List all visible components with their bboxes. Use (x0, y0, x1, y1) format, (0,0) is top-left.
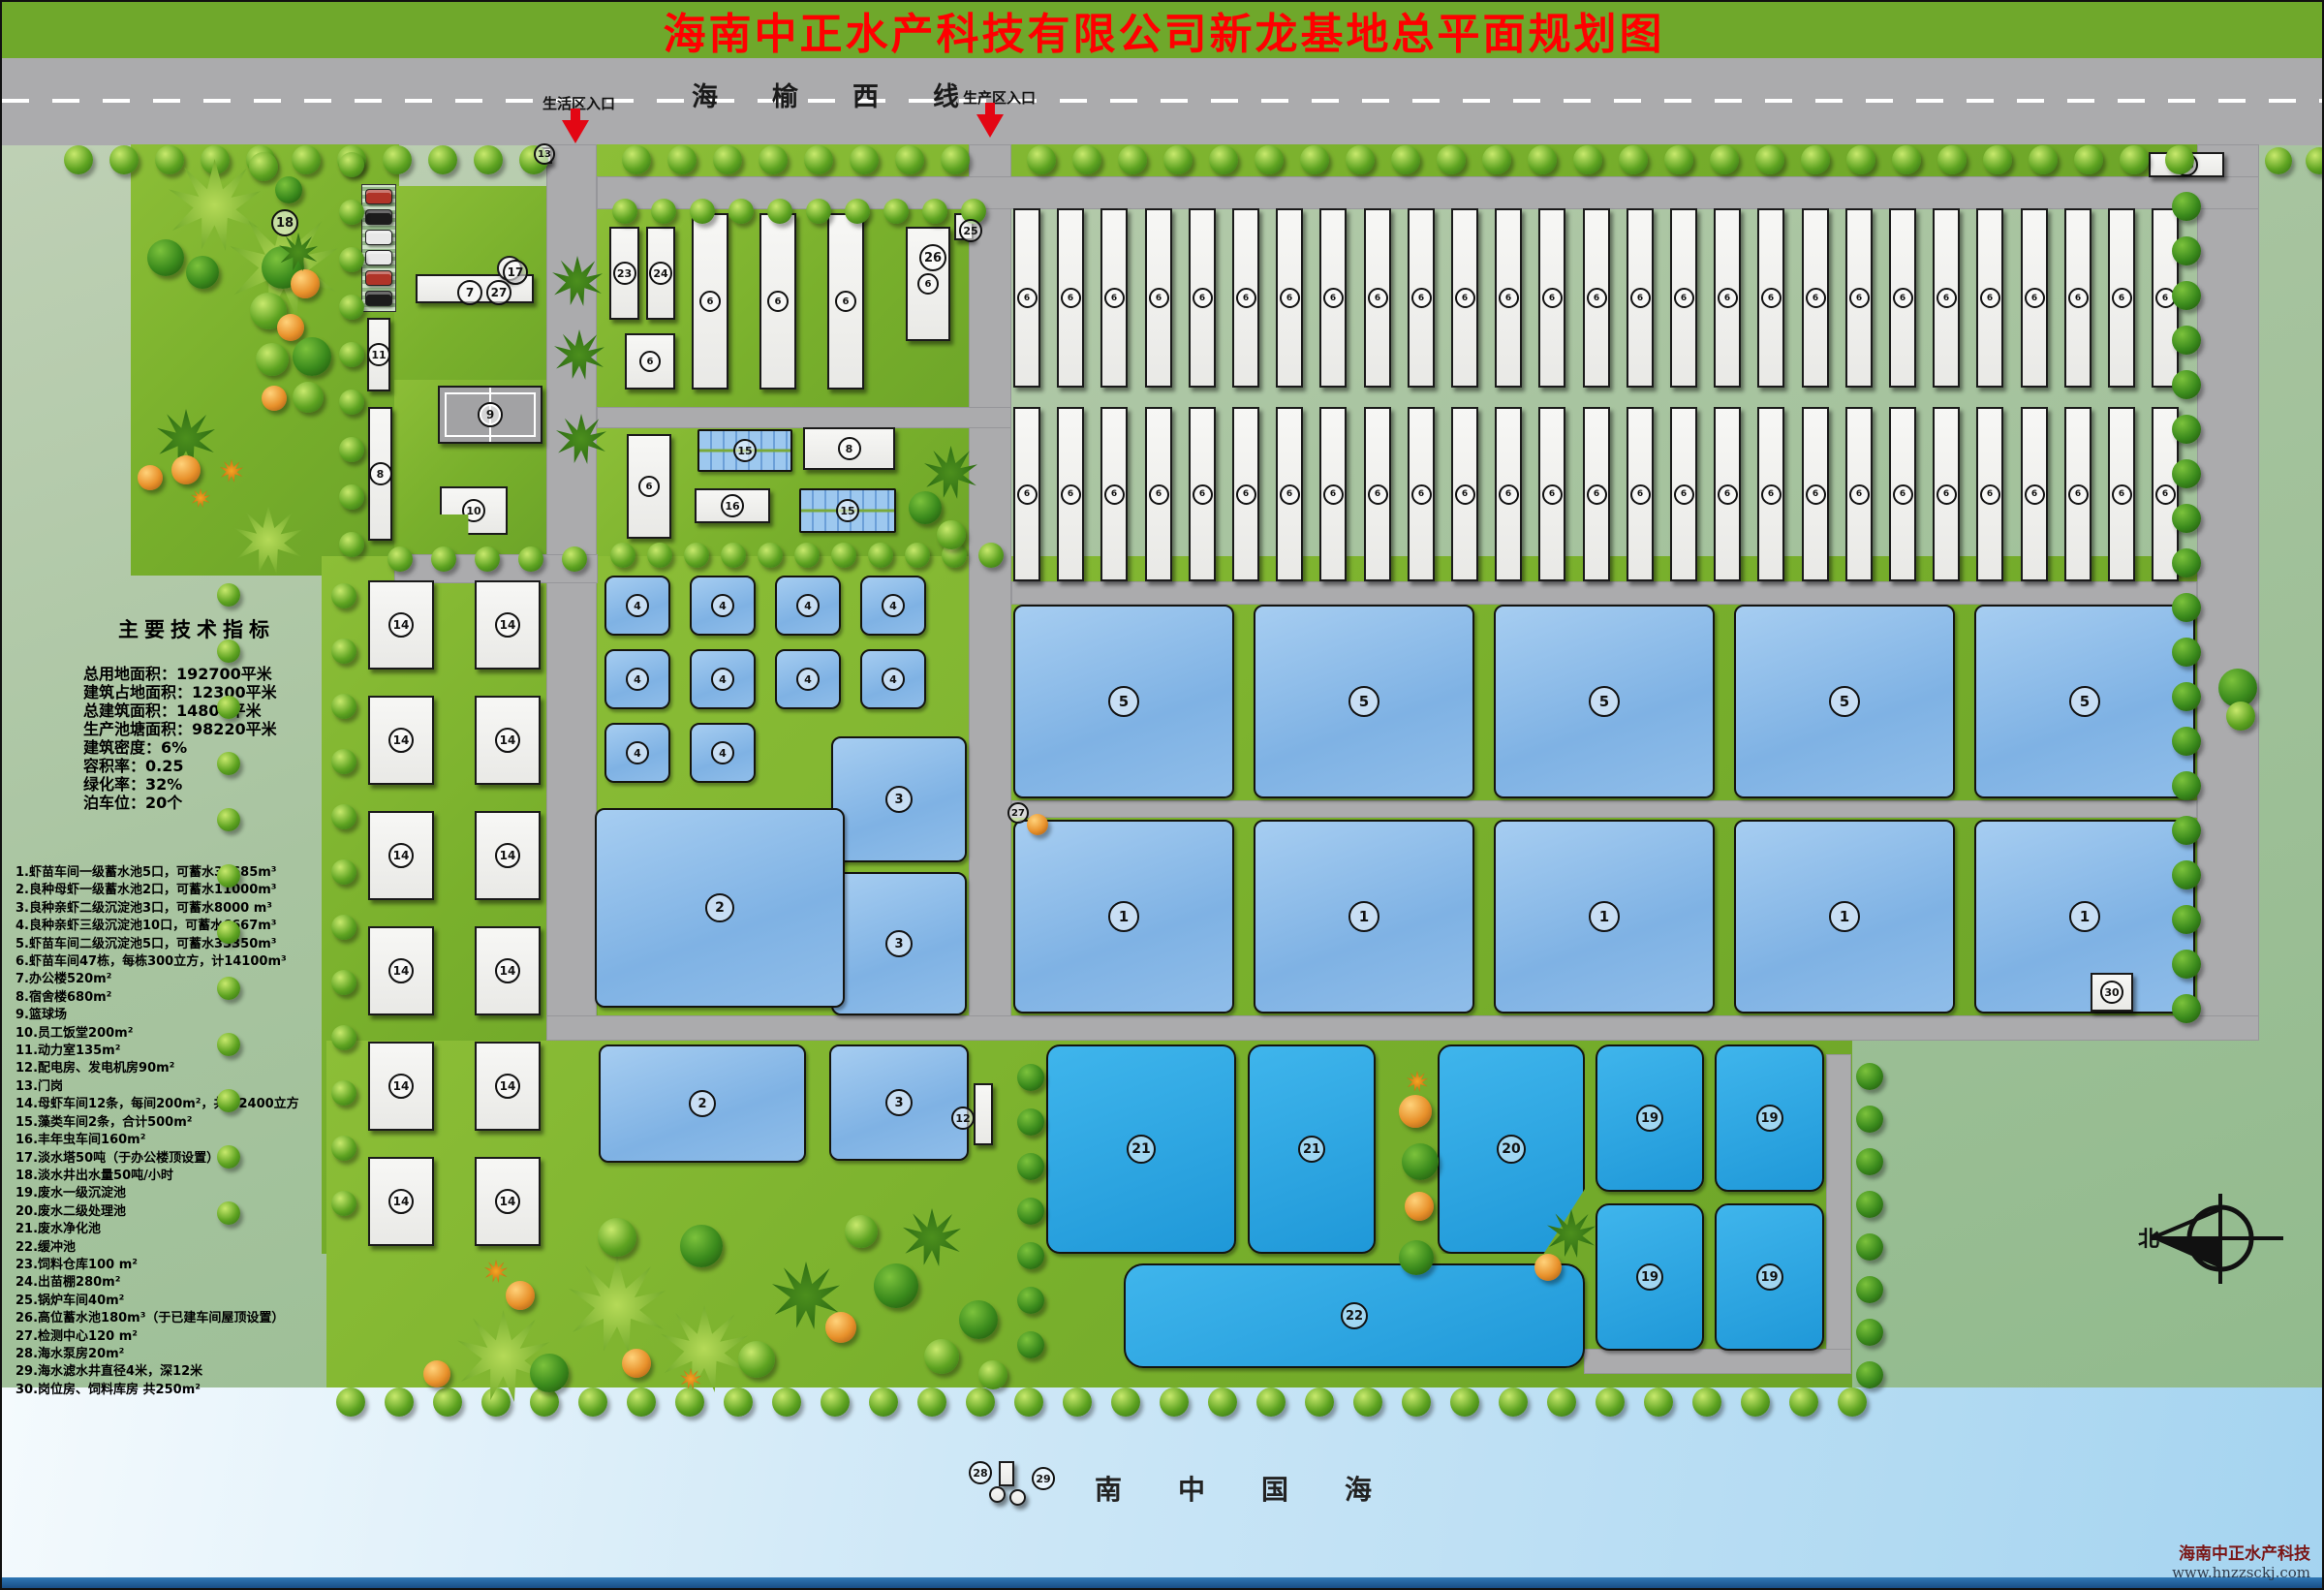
bush-tree-icon (2074, 145, 2103, 174)
bush-tree-icon (217, 752, 240, 775)
bush-tree-icon (850, 145, 879, 174)
bush-tree-icon (331, 639, 356, 664)
dark-tree-icon (2172, 459, 2201, 488)
orange-tree-icon (171, 455, 201, 484)
map-label-17: 17 (503, 260, 528, 285)
bush-tree-icon (339, 247, 364, 272)
building-6: 6 (1538, 407, 1565, 581)
dark-tree-icon (1017, 1331, 1044, 1358)
number-label-6: 6 (2068, 288, 2089, 308)
bush-tree-icon (883, 199, 909, 224)
number-label-9: 9 (478, 402, 503, 427)
number-label-4: 4 (626, 741, 649, 764)
dark-tree-icon (959, 1300, 998, 1339)
building-6: 6 (1276, 208, 1303, 388)
orange-tree-icon (262, 386, 287, 411)
bush-tree-icon (385, 1387, 414, 1417)
bush-tree-icon (1014, 1387, 1043, 1417)
car (365, 189, 392, 204)
building-6: 6 (1802, 208, 1829, 388)
number-label-21: 21 (1298, 1136, 1325, 1163)
bush-tree-icon (767, 199, 792, 224)
dark-tree-icon (530, 1354, 569, 1392)
number-label-14: 14 (495, 843, 520, 868)
building-14: 14 (368, 580, 434, 670)
bush-tree-icon (217, 1089, 240, 1112)
dark-tree-icon (2172, 548, 2201, 577)
dark-tree-icon (147, 239, 184, 276)
car (365, 230, 392, 245)
bush-tree-icon (772, 1387, 801, 1417)
number-label-6: 6 (1061, 484, 1081, 505)
bush-tree-icon (724, 1387, 753, 1417)
bush-tree-icon (2165, 145, 2194, 174)
number-label-6: 6 (1017, 288, 1038, 308)
pond-1: 1 (1734, 820, 1955, 1013)
number-label-14: 14 (388, 1074, 414, 1099)
orange-tree-icon (506, 1281, 535, 1310)
bush-tree-icon (610, 543, 635, 568)
building-6: 6 (1670, 208, 1697, 388)
road (597, 407, 1011, 428)
number-label-6: 6 (917, 273, 939, 295)
bush-tree-icon (217, 1033, 240, 1056)
bush-tree-icon (978, 543, 1004, 568)
number-label-14: 14 (388, 612, 414, 638)
building-14: 14 (475, 926, 541, 1015)
pond-4: 4 (604, 649, 670, 709)
building-6: 6 (1100, 208, 1128, 388)
compass-north-label: 北 (2138, 1228, 2159, 1252)
bush-tree-icon (831, 543, 856, 568)
bush-tree-icon (428, 145, 457, 174)
pond-15: 15 (799, 488, 896, 533)
dark-tree-icon (1017, 1108, 1044, 1136)
number-label-6: 6 (1061, 288, 1081, 308)
map-label-26: 26 (919, 244, 946, 271)
pond-21: 21 (1046, 1044, 1236, 1254)
number-label-8: 8 (838, 437, 861, 460)
bush-tree-icon (713, 145, 742, 174)
number-label-6: 6 (1149, 484, 1169, 505)
bush-tree-icon (481, 1387, 511, 1417)
building-x (974, 1083, 993, 1145)
building-6: 6 (2108, 407, 2135, 581)
number-label-4: 4 (711, 594, 734, 617)
bush-tree-icon (2265, 147, 2292, 174)
number-label-6: 6 (2025, 484, 2045, 505)
building-6: 6 (627, 434, 671, 539)
bush-tree-icon (924, 1339, 959, 1374)
dark-tree-icon (2172, 281, 2201, 310)
pond-4: 4 (604, 576, 670, 636)
number-label-21: 21 (1127, 1135, 1156, 1164)
building-14: 14 (368, 696, 434, 785)
building-6: 6 (1889, 208, 1916, 388)
dark-tree-icon (2172, 415, 2201, 444)
building-6: 6 (1057, 208, 1084, 388)
building-30: 30 (2091, 973, 2133, 1012)
bush-tree-icon (1846, 145, 1875, 174)
building-6: 6 (1145, 407, 1172, 581)
bush-tree-icon (845, 1215, 878, 1248)
road-centerline (2, 99, 2324, 103)
number-label-4: 4 (626, 594, 649, 617)
bush-tree-icon (331, 694, 356, 719)
number-label-4: 4 (882, 594, 905, 617)
number-label-14: 14 (388, 728, 414, 753)
bush-tree-icon (845, 199, 870, 224)
number-label-4: 4 (711, 741, 734, 764)
bush-tree-icon (1937, 145, 1967, 174)
bush-tree-icon (339, 152, 364, 177)
bush-tree-icon (2120, 145, 2149, 174)
number-label-3: 3 (885, 786, 913, 813)
dark-tree-icon (1856, 1106, 1883, 1133)
pond-3: 3 (831, 736, 967, 862)
car (365, 291, 392, 306)
number-label-5: 5 (1589, 686, 1620, 717)
number-label-6: 6 (1761, 288, 1782, 308)
bush-tree-icon (758, 543, 783, 568)
bush-tree-icon (1801, 145, 1830, 174)
building-6: 6 (1189, 407, 1216, 581)
number-label-6: 6 (1587, 288, 1607, 308)
bush-tree-icon (675, 1387, 704, 1417)
number-label-14: 14 (495, 1074, 520, 1099)
bush-tree-icon (622, 145, 651, 174)
number-label-6: 6 (1104, 288, 1125, 308)
number-label-14: 14 (388, 958, 414, 983)
dark-tree-icon (186, 256, 219, 289)
building-6: 6 (2021, 407, 2048, 581)
number-label-3: 3 (885, 930, 913, 957)
car (365, 250, 392, 265)
bush-tree-icon (978, 1360, 1007, 1389)
dark-tree-icon (2172, 727, 2201, 756)
dark-tree-icon (1856, 1063, 1883, 1090)
building-6: 6 (1976, 407, 2003, 581)
building-6: 6 (1583, 407, 1610, 581)
number-label-22: 22 (1341, 1302, 1368, 1329)
number-label-14: 14 (495, 1189, 520, 1214)
number-label-6: 6 (1499, 288, 1519, 308)
number-label-23: 23 (613, 262, 636, 285)
bush-tree-icon (331, 749, 356, 774)
building-14: 14 (368, 1042, 434, 1131)
bush-tree-icon (256, 343, 289, 376)
pond-5: 5 (1734, 605, 1955, 798)
number-label-15: 15 (836, 499, 859, 522)
number-label-6: 6 (1674, 288, 1694, 308)
building-6: 6 (1802, 407, 1829, 581)
bush-tree-icon (292, 145, 321, 174)
number-label-6: 6 (1980, 484, 2000, 505)
bush-tree-icon (339, 295, 364, 320)
bush-tree-icon (905, 543, 930, 568)
bush-tree-icon (578, 1387, 607, 1417)
title-band: 海南中正水产科技有限公司新龙基地总平面规划图 (2, 2, 2324, 58)
dark-tree-icon (1856, 1233, 1883, 1261)
dark-tree-icon (1856, 1148, 1883, 1175)
bush-tree-icon (339, 437, 364, 462)
road (1011, 800, 2197, 818)
dark-tree-icon (2172, 593, 2201, 622)
pond-4: 4 (690, 576, 756, 636)
number-label-6: 6 (1849, 288, 1870, 308)
number-label-6: 6 (1411, 288, 1432, 308)
bush-tree-icon (1209, 145, 1238, 174)
dark-tree-icon (2172, 771, 2201, 800)
dark-tree-icon (2172, 682, 2201, 711)
number-label-1: 1 (1589, 901, 1620, 932)
bush-tree-icon (922, 199, 947, 224)
pond-1: 1 (1494, 820, 1715, 1013)
bush-tree-icon (331, 970, 356, 995)
building-6: 6 (1364, 208, 1391, 388)
number-label-6: 6 (1411, 484, 1432, 505)
map-label-27: 27 (1007, 802, 1029, 824)
bush-tree-icon (331, 1191, 356, 1216)
building-6: 6 (1757, 208, 1784, 388)
bush-tree-icon (109, 145, 139, 174)
number-label-6: 6 (1368, 288, 1388, 308)
building-6: 6 (1538, 208, 1565, 388)
living-entrance-arrow-icon (562, 109, 589, 143)
building-6: 6 (2064, 407, 2092, 581)
number-label-6: 6 (1455, 288, 1475, 308)
bush-tree-icon (937, 520, 966, 549)
map-label-13: 13 (534, 143, 555, 165)
orange-tree-icon (1399, 1095, 1432, 1128)
pond-19: 19 (1596, 1044, 1704, 1192)
bush-tree-icon (293, 382, 324, 413)
building-6: 6 (625, 333, 675, 390)
pond-22: 22 (1124, 1263, 1585, 1368)
page-title: 海南中正水产科技有限公司新龙基地总平面规划图 (664, 0, 1665, 61)
building-x (989, 1486, 1006, 1503)
number-label-4: 4 (796, 668, 820, 691)
number-label-6: 6 (767, 291, 789, 312)
bush-tree-icon (217, 583, 240, 607)
pond-5: 5 (1013, 605, 1234, 798)
building-23: 23 (609, 227, 639, 320)
dark-tree-icon (2172, 816, 2201, 845)
arrow-head (562, 120, 589, 143)
pond-4: 4 (690, 649, 756, 709)
building-6: 6 (1627, 208, 1654, 388)
dark-tree-icon (1399, 1240, 1434, 1275)
number-label-6: 6 (2155, 484, 2176, 505)
building-6: 6 (1057, 407, 1084, 581)
bush-tree-icon (249, 152, 278, 181)
bush-tree-icon (1305, 1387, 1334, 1417)
bush-tree-icon (651, 199, 676, 224)
bush-tree-icon (217, 696, 240, 719)
bush-tree-icon (690, 199, 715, 224)
deep-sea-strip (2, 1577, 2324, 1590)
building-6: 6 (1189, 208, 1216, 388)
arrow-head (976, 114, 1004, 138)
map-label-25: 25 (959, 219, 982, 242)
dark-tree-icon (680, 1225, 723, 1267)
building-6: 6 (1319, 208, 1347, 388)
dark-tree-icon (1017, 1242, 1044, 1269)
production-entrance-arrow-icon (976, 103, 1004, 138)
building-8: 8 (368, 407, 392, 541)
number-label-6: 6 (1017, 484, 1038, 505)
number-label-1: 1 (1348, 901, 1379, 932)
bush-tree-icon (1208, 1387, 1237, 1417)
orange-tree-icon (1405, 1192, 1434, 1221)
road (1584, 1349, 1851, 1374)
road (969, 144, 1011, 1041)
number-label-6: 6 (1893, 484, 1913, 505)
bush-tree-icon (339, 484, 364, 510)
number-label-6: 6 (1587, 484, 1607, 505)
bush-tree-icon (217, 977, 240, 1000)
number-label-8: 8 (369, 462, 392, 485)
pond-19: 19 (1596, 1203, 1704, 1351)
number-label-6: 6 (1236, 288, 1256, 308)
number-label-30: 30 (2100, 981, 2123, 1004)
number-label-19: 19 (1636, 1263, 1663, 1291)
bush-tree-icon (339, 532, 364, 557)
dark-tree-icon (1017, 1287, 1044, 1314)
pond-5: 5 (1254, 605, 1474, 798)
building-6: 6 (1232, 407, 1259, 581)
pond-3: 3 (829, 1044, 969, 1161)
bush-tree-icon (387, 546, 413, 572)
bush-tree-icon (759, 145, 788, 174)
number-label-5: 5 (1829, 686, 1860, 717)
map-label-28: 28 (969, 1461, 992, 1484)
number-label-1: 1 (1829, 901, 1860, 932)
number-label-6: 6 (699, 291, 721, 312)
building-8: 8 (803, 427, 895, 470)
bush-tree-icon (1482, 145, 1511, 174)
bush-tree-icon (339, 342, 364, 367)
bush-tree-icon (217, 808, 240, 831)
compass-icon: 北 (2138, 1192, 2293, 1289)
arrow-stem (985, 103, 995, 114)
building-6: 6 (1451, 208, 1478, 388)
dark-tree-icon (1856, 1319, 1883, 1346)
building-6: 6 (1013, 407, 1040, 581)
building-11: 11 (367, 318, 390, 391)
dark-tree-icon (909, 491, 942, 524)
bush-tree-icon (1353, 1387, 1382, 1417)
bush-tree-icon (612, 199, 637, 224)
number-label-2: 2 (705, 893, 734, 922)
pond-4: 4 (775, 576, 841, 636)
orange-tree-icon (291, 269, 320, 298)
bush-tree-icon (941, 145, 970, 174)
number-label-3: 3 (885, 1089, 913, 1116)
number-label-1: 1 (2069, 901, 2100, 932)
bush-tree-icon (1710, 145, 1739, 174)
number-label-6: 6 (1674, 484, 1694, 505)
bush-tree-icon (331, 859, 356, 885)
orange-tree-icon (423, 1360, 450, 1387)
building-6: 6 (759, 213, 796, 390)
bush-tree-icon (1692, 1387, 1721, 1417)
building-6: 6 (1276, 407, 1303, 581)
dark-tree-icon (874, 1263, 918, 1308)
bush-tree-icon (806, 199, 831, 224)
number-label-6: 6 (2068, 484, 2089, 505)
bush-tree-icon (1450, 1387, 1479, 1417)
number-label-6: 6 (1542, 288, 1563, 308)
bush-tree-icon (475, 546, 500, 572)
building-x (1009, 1489, 1026, 1506)
building-14: 14 (475, 580, 541, 670)
number-label-6: 6 (1323, 484, 1344, 505)
pond-4: 4 (690, 723, 756, 783)
bush-tree-icon (966, 1387, 995, 1417)
number-label-6: 6 (1630, 484, 1651, 505)
building-9: 9 (438, 386, 542, 444)
number-label-6: 6 (1849, 484, 1870, 505)
number-label-6: 6 (1630, 288, 1651, 308)
bush-tree-icon (1402, 1387, 1431, 1417)
bush-tree-icon (1596, 1387, 1625, 1417)
building-6: 6 (1845, 208, 1873, 388)
number-label-5: 5 (1108, 686, 1139, 717)
bush-tree-icon (1547, 1387, 1576, 1417)
bush-tree-icon (684, 543, 709, 568)
number-label-6: 6 (1280, 484, 1300, 505)
building-6: 6 (1145, 208, 1172, 388)
bush-tree-icon (721, 543, 746, 568)
number-label-6: 6 (1937, 484, 1957, 505)
building-6: 6 (692, 213, 728, 390)
number-label-6: 6 (1236, 484, 1256, 505)
number-label-4: 4 (711, 668, 734, 691)
number-label-4: 4 (626, 668, 649, 691)
bush-tree-icon (2306, 147, 2324, 174)
watermark: 海南中正水产科技 www.hnzzsckj.com (2172, 1544, 2310, 1581)
pond-21: 21 (1248, 1044, 1376, 1254)
building-6: 6 (1670, 407, 1697, 581)
number-label-6: 6 (1893, 288, 1913, 308)
pond-5: 5 (1974, 605, 2195, 798)
pond-15: 15 (697, 429, 792, 472)
bush-tree-icon (562, 546, 587, 572)
bush-tree-icon (433, 1387, 462, 1417)
bush-tree-icon (1664, 145, 1693, 174)
dark-tree-icon (2172, 192, 2201, 221)
orange-tree-icon (622, 1349, 651, 1378)
building-6: 6 (1100, 407, 1128, 581)
bush-tree-icon (331, 804, 356, 829)
bush-tree-icon (2029, 145, 2058, 174)
dark-tree-icon (1856, 1276, 1883, 1303)
dark-tree-icon (2172, 638, 2201, 667)
number-label-4: 4 (882, 668, 905, 691)
number-label-6: 6 (1542, 484, 1563, 505)
number-label-14: 14 (495, 958, 520, 983)
dark-tree-icon (293, 337, 331, 376)
building-6: 6 (1714, 208, 1741, 388)
number-label-14: 14 (388, 843, 414, 868)
number-label-15: 15 (733, 439, 757, 462)
bush-tree-icon (64, 145, 93, 174)
bush-tree-icon (217, 864, 240, 888)
building-6: 6 (1013, 208, 1040, 388)
pond-1: 1 (1974, 820, 2195, 1013)
road (1826, 1054, 1851, 1374)
